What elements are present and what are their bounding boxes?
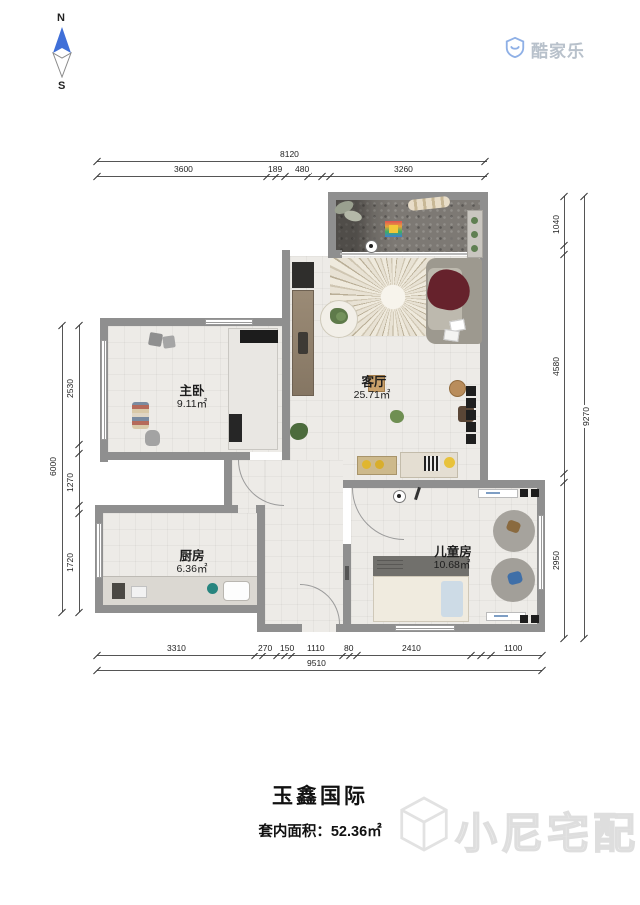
bench-decor [362,460,371,469]
dim-top-overall: 8120 [278,150,301,159]
wall [343,480,545,488]
wall [328,192,336,258]
pillow [162,335,176,349]
sofa-pillow [443,329,459,342]
wall [328,192,488,200]
football [365,240,378,253]
dim-bottom-seg: 150 [278,644,296,653]
watermark-text: 小尼宅配 [455,800,639,861]
dim-bottom-seg: 1110 [305,644,327,653]
kujiale-logo-text: 酷家乐 [531,42,585,61]
kids-shelf-decor [494,615,508,617]
clothes-rack [240,330,278,343]
dim-right-seg: 1040 [552,213,561,236]
headboard-slat [377,564,403,565]
bench-decor [375,460,384,469]
room-area-living: 25.71㎡ [354,387,391,402]
wood-stool [449,380,466,397]
hall-lamp [345,566,349,580]
dim-bottom-overall: 9510 [305,659,328,668]
wall [257,513,265,605]
dim-line-bottom-segments [97,655,542,656]
room-area-master: 9.11㎡ [177,396,207,411]
dim-left-seg: 2530 [66,377,75,400]
dim-right-seg: 2950 [552,549,561,572]
wall-shelf-box [466,410,476,420]
plant-pot [471,231,478,238]
wall [100,318,290,326]
wall-shelf-box [466,398,476,408]
area-value: 52.36㎡ [331,824,382,840]
dim-top-seg: 480 [293,165,311,174]
wall-shelf-box [466,434,476,444]
kitchen-appliance [131,586,147,598]
wall [95,505,238,513]
floor-plant-small [390,410,404,423]
sideboard-dark [292,262,314,288]
table-plant-leaf [336,312,346,321]
dim-bottom-seg: 1100 [502,644,524,653]
speaker-box [531,615,539,623]
kettle [207,583,218,594]
dim-bottom-seg: 270 [256,644,274,653]
dim-left-seg: 1270 [66,471,75,494]
plant-pot [471,245,478,252]
wall-shelf-box [466,422,476,432]
balcony-slider-track [340,253,470,255]
speaker-box [520,489,528,497]
dim-right-overall: 9270 [582,405,591,428]
stove [112,583,125,599]
console-decor [444,457,455,468]
wall [95,605,265,613]
dim-left-overall: 6000 [49,455,58,478]
plant-pot [471,217,478,224]
dim-line-bottom-overall [97,670,542,671]
kujiale-shield-icon [504,36,526,58]
wall [343,544,351,632]
dim-line-left-overall [62,325,63,612]
speaker-box [531,489,539,497]
compass-north-label: N [57,12,65,24]
window-kids-bottom [395,625,455,631]
area-label: 套内面积： [258,824,331,840]
floorplan-page: N S 酷家乐 [0,0,640,905]
bag [145,430,160,446]
dim-top-seg: 189 [266,165,284,174]
dim-line-top-overall [97,161,487,162]
window-kitchen-left [96,523,102,578]
compass-south-label: S [58,80,65,92]
dim-left-seg: 1720 [66,551,75,574]
wall [224,452,232,513]
pillow [148,332,163,347]
kids-pillow [441,581,463,617]
dim-top-seg: 3600 [172,165,195,174]
dim-bottom-seg: 80 [342,644,355,653]
dim-top-seg: 3260 [392,165,415,174]
window-kids-right [538,515,544,590]
tv-cabinet-slot [298,332,308,354]
toy-box-inner [389,225,398,233]
room-area-kitchen: 6.36㎡ [177,561,208,576]
football [393,490,406,503]
dim-line-left-segments [79,325,80,612]
zebra-cushion [424,456,440,471]
room-area-kids: 10.68㎡ [434,557,471,572]
striped-mat [132,402,149,429]
wall [282,250,290,460]
compass-needle-icon [50,26,74,78]
dim-line-top-segments [97,176,487,177]
speaker-box [520,615,528,623]
kitchen-sink [223,581,250,601]
bedroom-tv [229,414,242,442]
wall [257,624,302,632]
watermark-cube-icon [398,795,450,853]
dim-bottom-seg: 2410 [400,644,423,653]
headboard-slat [377,568,403,569]
dim-line-right-segments [564,196,565,638]
dim-bottom-seg: 3310 [165,644,188,653]
window-bedroom-left [101,340,107,440]
window-bedroom-top [205,319,253,325]
headboard-slat [377,560,403,561]
wall [256,505,265,513]
kids-shelf-decor [486,492,500,494]
dim-right-seg: 4580 [552,355,561,378]
wall-shelf-box [466,386,476,396]
